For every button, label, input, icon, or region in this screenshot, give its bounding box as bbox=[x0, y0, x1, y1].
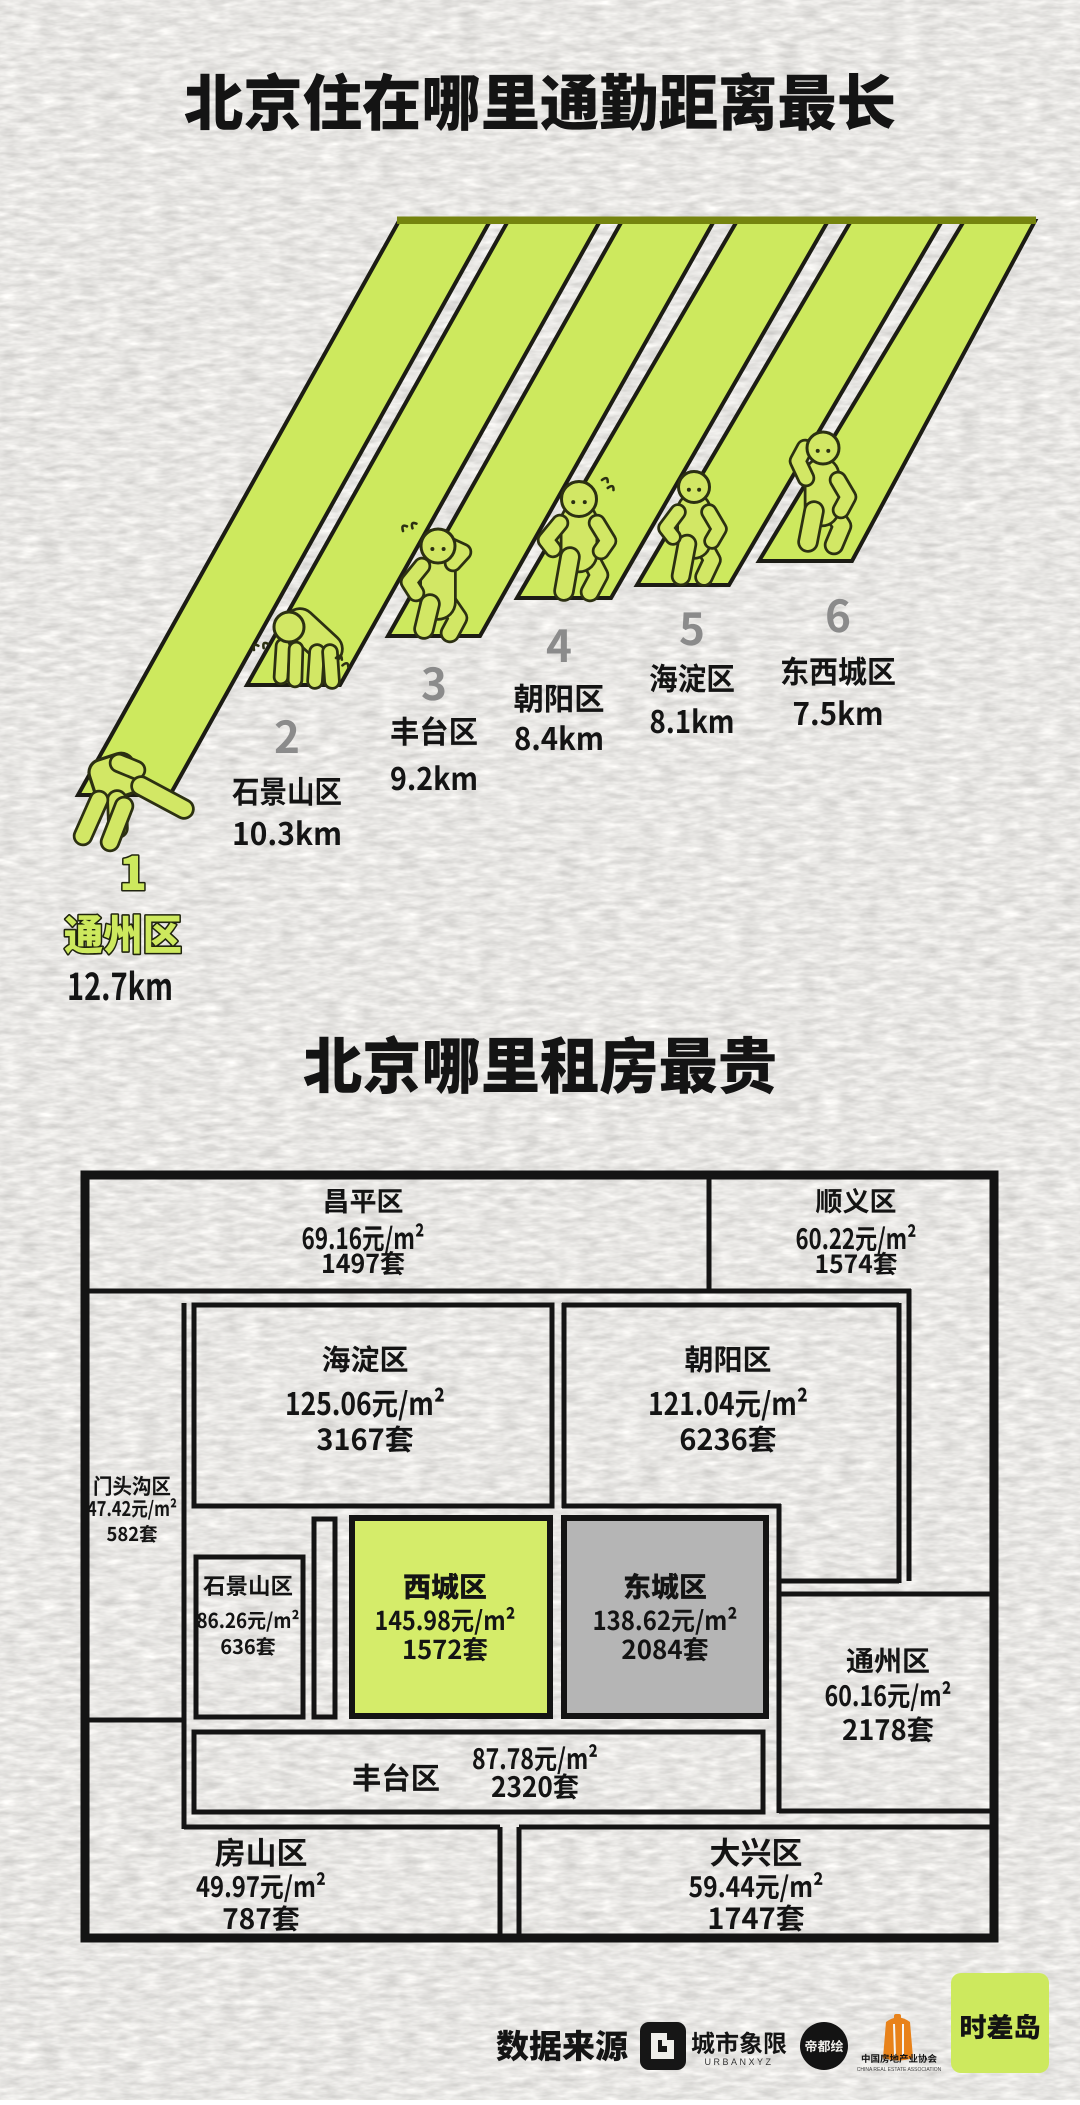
svg-text:CHINA REAL ESTATE ASSOCIATION: CHINA REAL ESTATE ASSOCIATION bbox=[857, 2067, 942, 2073]
svg-text:URBANXYZ: URBANXYZ bbox=[704, 2057, 773, 2067]
